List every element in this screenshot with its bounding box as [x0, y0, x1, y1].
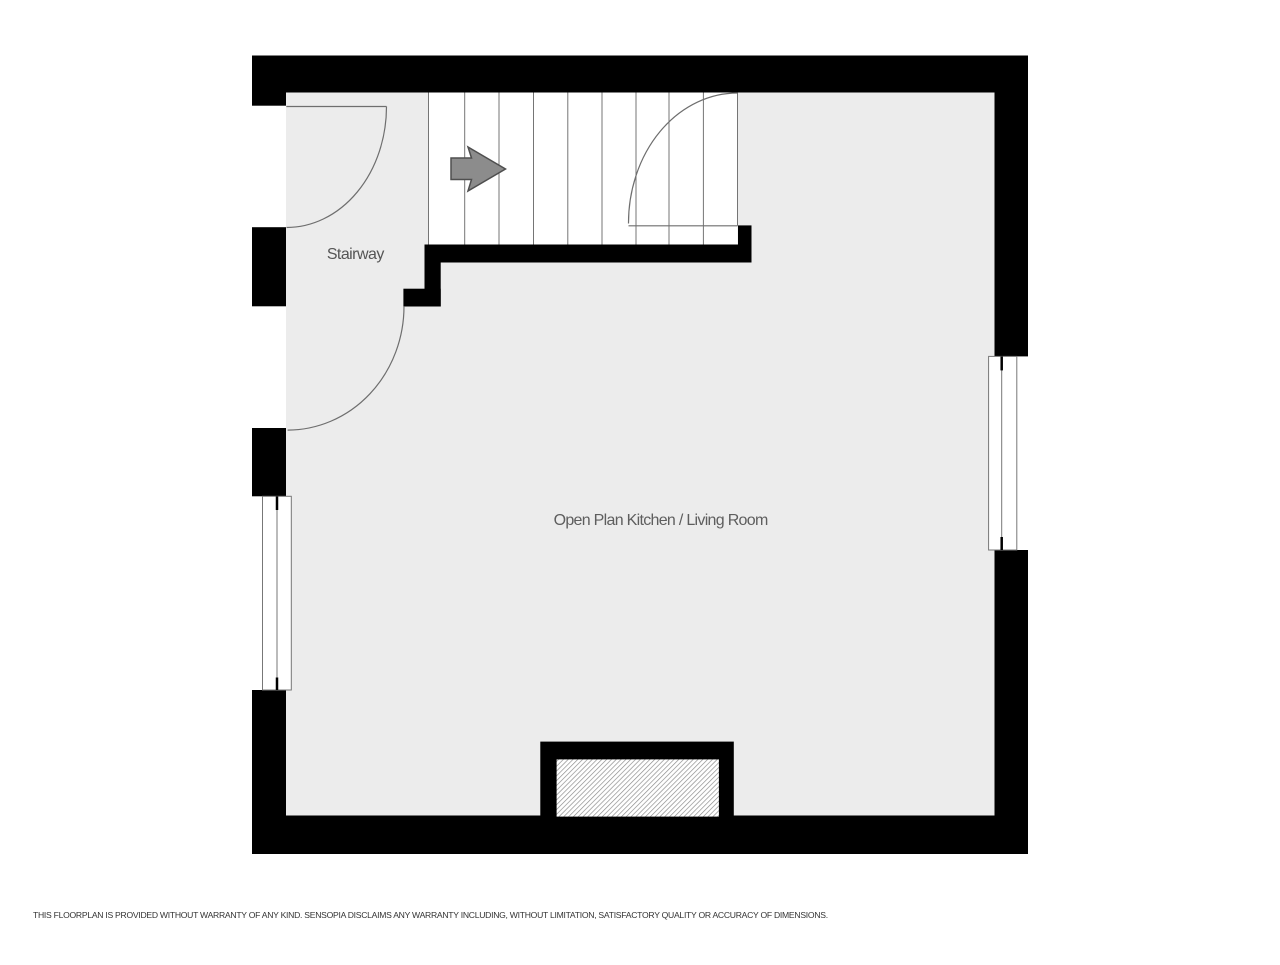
svg-text:Stairway: Stairway: [327, 246, 385, 263]
svg-text:Open Plan Kitchen / Living Roo: Open Plan Kitchen / Living Room: [554, 512, 768, 529]
svg-text:THIS FLOORPLAN IS PROVIDED WIT: THIS FLOORPLAN IS PROVIDED WITHOUT WARRA…: [33, 910, 828, 920]
